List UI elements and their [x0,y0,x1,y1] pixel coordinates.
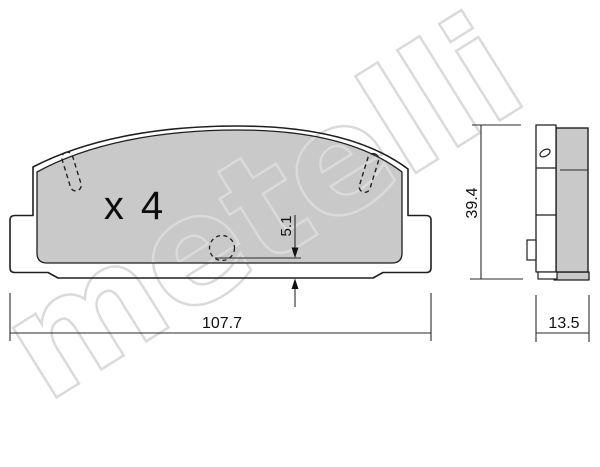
mount-tab-edge [527,240,536,260]
brake-pad-drawing-canvas: metelli x 4 107.7 39.4 [0,0,600,467]
friction-foot-edge [554,272,589,280]
dimension-label-thickness: 13.5 [548,315,579,332]
dimension-label-width: 107.7 [202,315,242,332]
quantity-label: x 4 [104,184,166,228]
side-view [527,125,589,280]
backplate-foot-edge [538,272,557,279]
dimension-thickness: 13.5 [536,295,589,342]
friction-edge-view [556,128,588,272]
technical-drawing-page: metelli x 4 107.7 39.4 [0,0,600,467]
dimension-label-height: 39.4 [464,187,481,218]
backplate-edge-view [536,125,556,272]
dimension-label-offset: 5.1 [278,216,295,237]
